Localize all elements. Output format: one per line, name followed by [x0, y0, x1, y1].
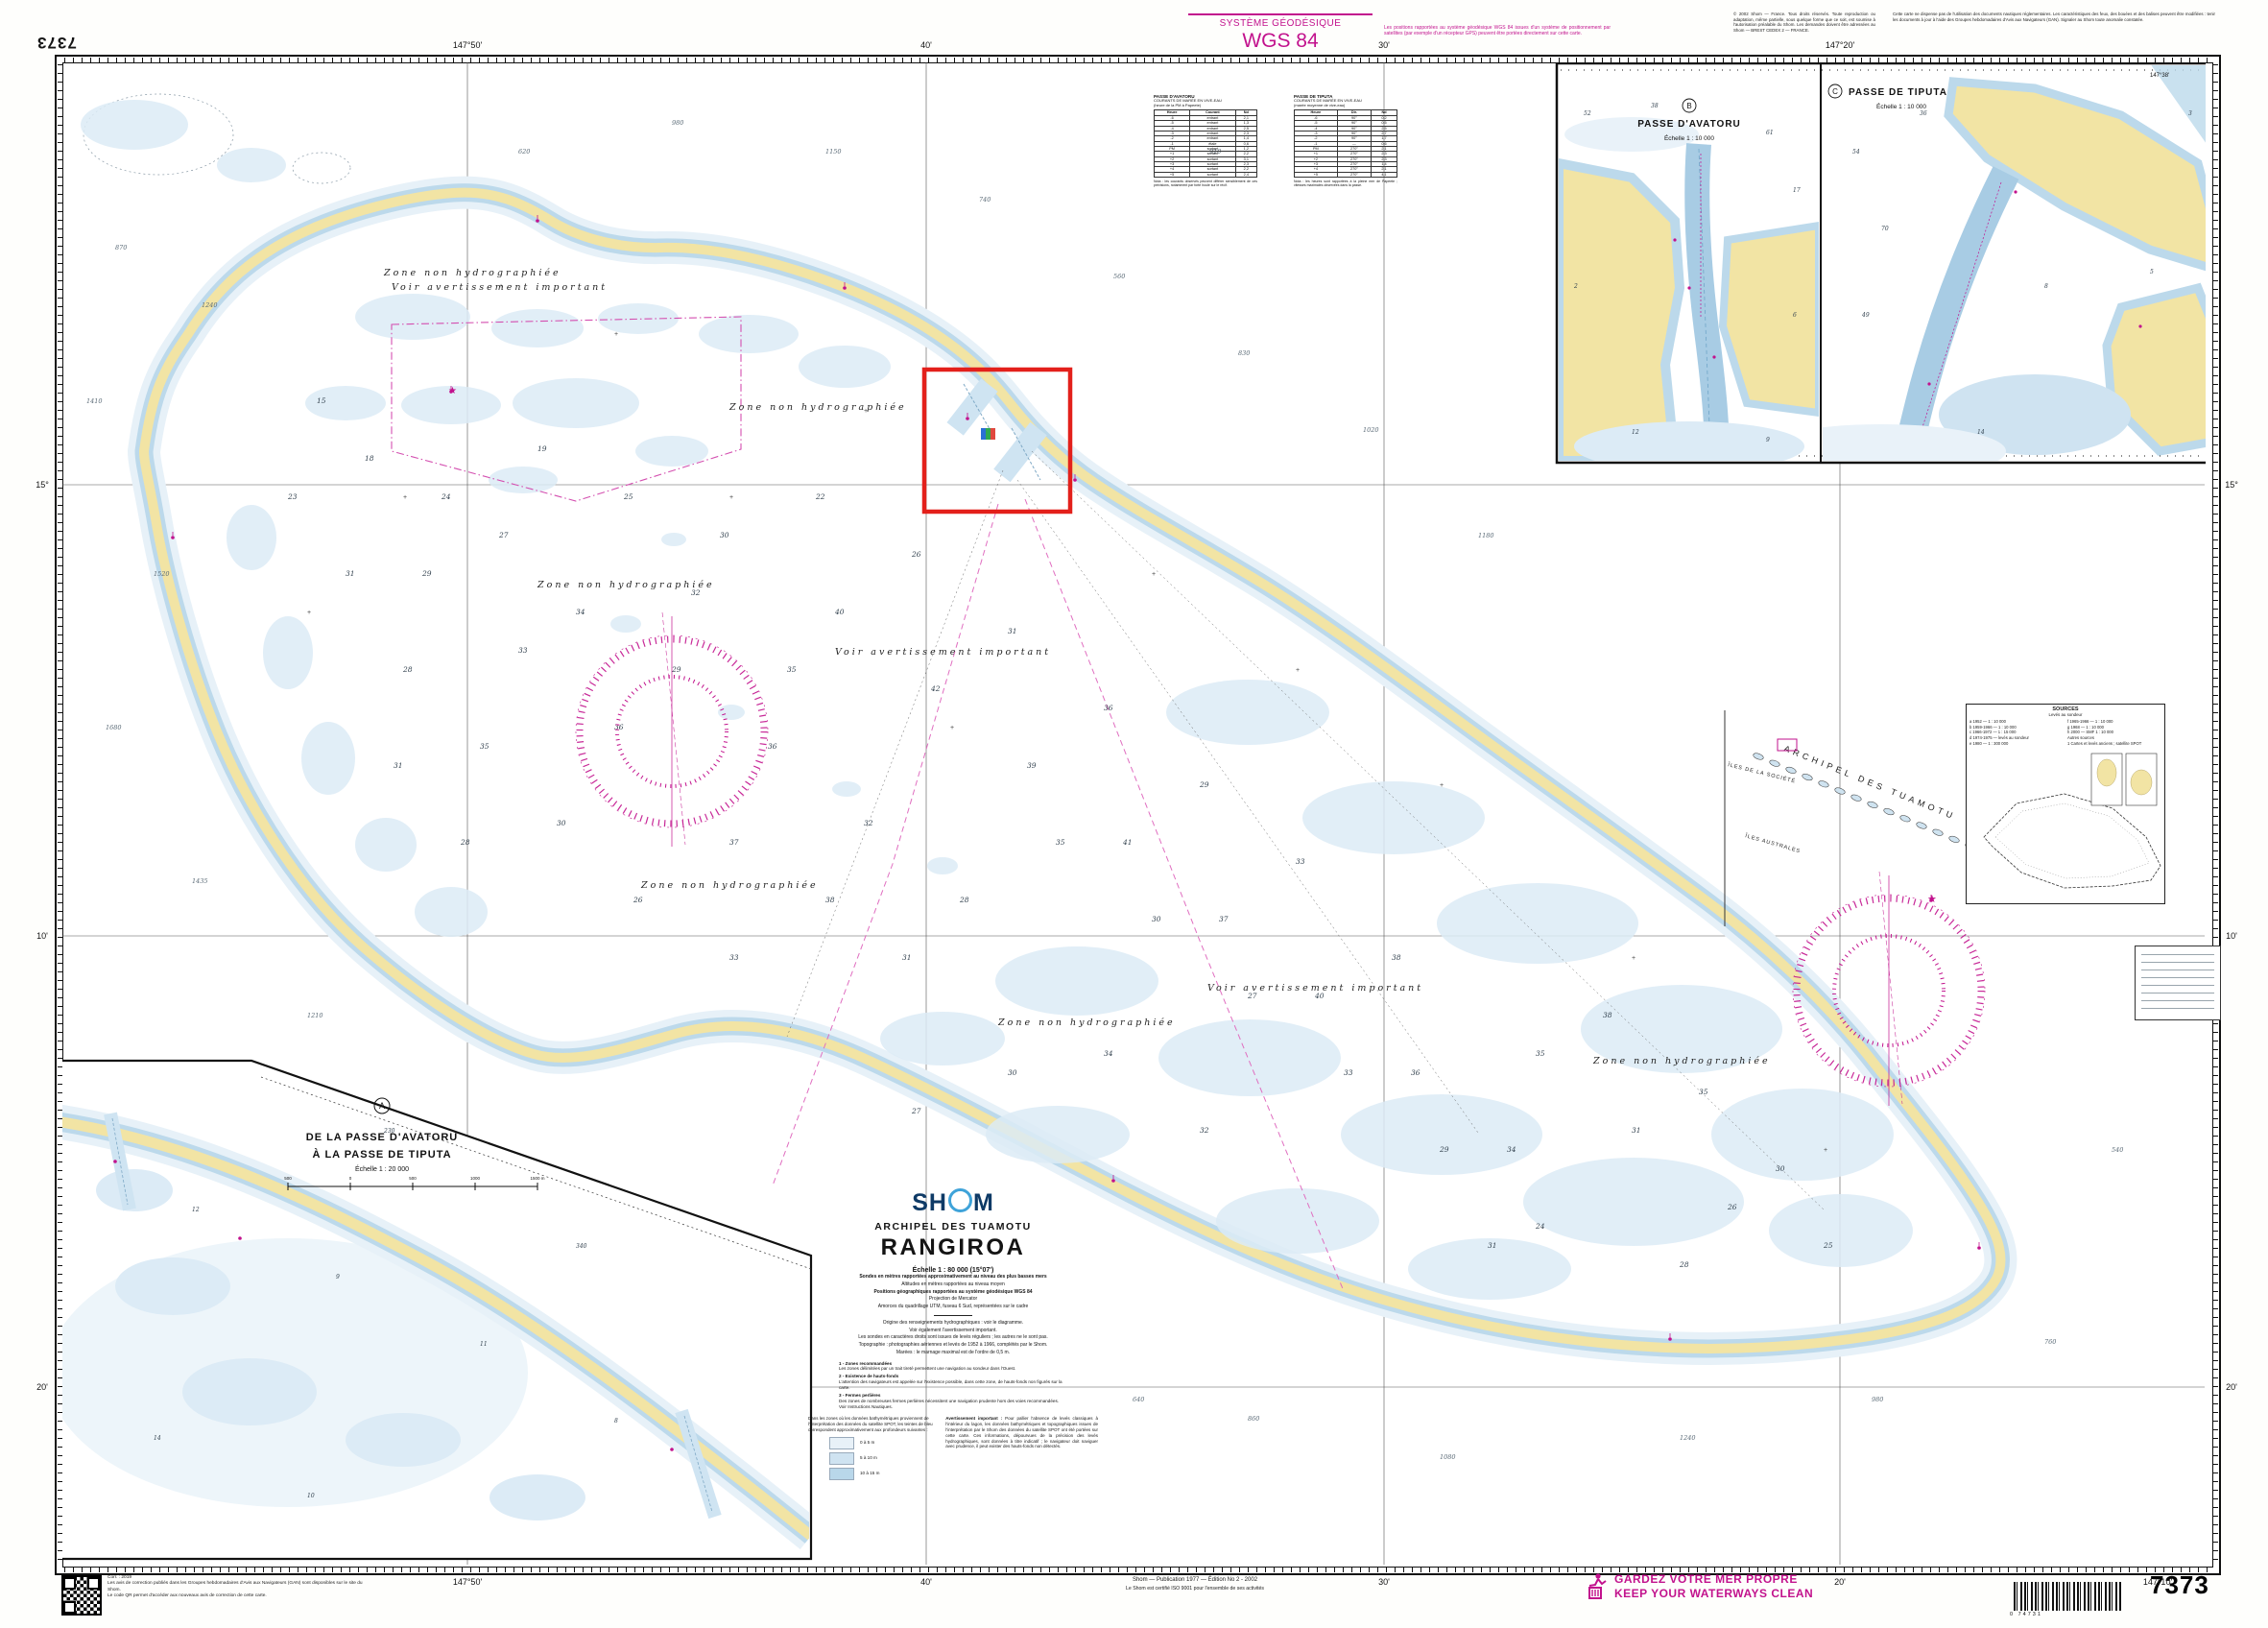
svg-text:8: 8	[2044, 283, 2048, 290]
svg-text:6: 6	[1793, 312, 1797, 319]
keep-sea-clean-note: GARDEZ VOTRE MER PROPRE KEEP YOUR WATERW…	[1586, 1572, 1813, 1601]
svg-text:61: 61	[1766, 130, 1774, 136]
svg-text:1435: 1435	[192, 877, 208, 885]
svg-text:+: +	[614, 331, 618, 338]
svg-text:32: 32	[864, 819, 873, 827]
svg-text:1080: 1080	[1440, 1453, 1456, 1461]
origin-notes: Origine des renseignements hydrographiqu…	[808, 1320, 1098, 1357]
svg-text:2: 2	[1573, 283, 1578, 290]
svg-text:31: 31	[346, 569, 355, 578]
svg-text:33: 33	[518, 646, 528, 655]
svg-text:+: +	[403, 494, 407, 501]
svg-text:31: 31	[1632, 1126, 1641, 1135]
svg-text:40: 40	[834, 608, 845, 616]
svg-text:29: 29	[671, 665, 681, 674]
svg-text:70: 70	[1881, 226, 1889, 232]
svg-text:24: 24	[1535, 1222, 1545, 1231]
svg-text:28: 28	[959, 896, 969, 904]
svg-text:★: ★	[1927, 893, 1937, 905]
svg-text:À LA PASSE DE TIPUTA: À LA PASSE DE TIPUTA	[312, 1148, 451, 1161]
svg-text:31: 31	[902, 953, 912, 962]
archipelago-name: ARCHIPEL DES TUAMOTU	[808, 1221, 1098, 1233]
tide-table: HeureCourantNd-6entrant2,1-5entrant1,3-4…	[1154, 109, 1257, 178]
svg-text:35: 35	[480, 742, 489, 751]
depth-tint-legend: 0 à 5 m 5 à 10 m 10 à 15 m	[808, 1437, 938, 1480]
border-coordinate-label: 30'	[1378, 1577, 1390, 1587]
sources-sketch	[1967, 746, 2162, 890]
svg-text:35: 35	[1536, 1049, 1545, 1058]
svg-text:+: +	[1152, 571, 1156, 578]
svg-text:37: 37	[1219, 915, 1229, 923]
svg-text:37: 37	[729, 838, 739, 847]
svg-text:30: 30	[1008, 1068, 1017, 1077]
svg-text:Zone non hydrographiée: Zone non hydrographiée	[383, 268, 561, 278]
svg-text:31: 31	[394, 761, 403, 770]
svg-text:39: 39	[1027, 761, 1037, 770]
svg-text:500: 500	[284, 1176, 292, 1181]
svg-text:540: 540	[2112, 1146, 2123, 1154]
svg-text:+: +	[729, 494, 733, 501]
svg-text:+: +	[1296, 667, 1300, 674]
svg-text:1680: 1680	[106, 724, 122, 731]
svg-text:Zone non hydrographiée: Zone non hydrographiée	[640, 880, 819, 891]
svg-text:27: 27	[911, 1107, 921, 1115]
svg-text:54: 54	[1852, 149, 1860, 156]
svg-text:870: 870	[115, 244, 127, 251]
svg-text:36: 36	[768, 742, 777, 751]
svg-text:38: 38	[1651, 103, 1659, 109]
clean-sea-fr: GARDEZ VOTRE MER PROPRE	[1614, 1572, 1813, 1587]
svg-text:Zone non hydrographiée: Zone non hydrographiée	[997, 1017, 1176, 1028]
svg-text:9: 9	[336, 1274, 340, 1281]
svg-text:41: 41	[1122, 838, 1133, 847]
svg-text:+: +	[950, 725, 954, 731]
tide-table-tiputa: PASSE DE TIPUTA COURANTS DE MARÉE EN VIV…	[1294, 94, 1397, 187]
svg-text:38: 38	[825, 896, 835, 904]
chart-title: RANGIROA	[808, 1234, 1098, 1261]
clean-sea-en: KEEP YOUR WATERWAYS CLEAN	[1614, 1587, 1813, 1601]
svg-text:1210: 1210	[307, 1012, 323, 1019]
svg-text:9: 9	[1766, 437, 1770, 443]
svg-text:760: 760	[2044, 1338, 2056, 1346]
svg-text:30: 30	[1152, 915, 1161, 923]
svg-text:26: 26	[633, 896, 643, 904]
svg-text:31: 31	[1488, 1241, 1497, 1250]
svg-text:28: 28	[460, 838, 470, 847]
svg-text:30: 30	[1776, 1164, 1785, 1173]
svg-text:25: 25	[1823, 1241, 1833, 1250]
barcode	[2014, 1582, 2121, 1611]
svg-text:35: 35	[1699, 1088, 1708, 1096]
border-coordinate-label: 147°10'	[2143, 1577, 2172, 1587]
svg-text:52: 52	[1584, 110, 1591, 117]
svg-text:PASSE DE TIPUTA: PASSE DE TIPUTA	[1849, 87, 1947, 98]
svg-text:1180: 1180	[1478, 532, 1494, 539]
svg-text:Zone non hydrographiée: Zone non hydrographiée	[728, 402, 907, 413]
svg-text:25: 25	[623, 492, 633, 501]
border-coordinate-label: 20'	[2226, 1382, 2237, 1392]
svg-text:23: 23	[287, 492, 298, 501]
svg-text:36: 36	[1411, 1068, 1420, 1077]
border-coordinate-label: 30'	[1378, 40, 1390, 50]
svg-text:Voir avertissement important: Voir avertissement important	[835, 647, 1051, 658]
border-coordinate-label: 10'	[2226, 931, 2237, 941]
svg-text:Zone non hydrographiée: Zone non hydrographiée	[1592, 1056, 1771, 1066]
svg-text:147°38': 147°38'	[2150, 73, 2169, 79]
depth-swatch-5-10	[829, 1452, 854, 1465]
svg-text:22: 22	[815, 492, 825, 501]
svg-text:Échelle 1 : 20 000: Échelle 1 : 20 000	[355, 1164, 409, 1173]
svg-text:1410: 1410	[86, 397, 103, 405]
svg-text:27: 27	[498, 531, 509, 539]
svg-text:+: +	[499, 283, 503, 290]
svg-text:17: 17	[1793, 187, 1801, 194]
svg-text:30: 30	[720, 531, 729, 539]
svg-text:15: 15	[317, 396, 326, 405]
svg-text:1520: 1520	[154, 570, 170, 578]
border-coordinate-label: 15°	[36, 480, 49, 490]
svg-text:29: 29	[421, 569, 432, 578]
auxiliary-table-box	[2135, 946, 2221, 1020]
svg-text:33: 33	[729, 953, 739, 962]
svg-text:36: 36	[1104, 704, 1113, 712]
svg-text:19: 19	[537, 444, 547, 453]
svg-text:38: 38	[1392, 953, 1401, 962]
numbered-notes: 1 - Zones recommandéesLes zones délimité…	[839, 1361, 1067, 1411]
border-coordinate-label: 40'	[920, 1577, 932, 1587]
svg-text:860: 860	[1248, 1415, 1259, 1423]
svg-text:1240: 1240	[1680, 1434, 1696, 1442]
inset-panel-bc: 5238611726129BPASSE D'AVATORUÉchelle 1 :…	[1557, 63, 2217, 478]
important-warning: Avertissement important : Pour pallier l…	[945, 1416, 1098, 1480]
svg-text:1000: 1000	[470, 1176, 481, 1181]
svg-text:18: 18	[365, 454, 374, 463]
compass-rose	[576, 612, 768, 847]
map-content: 2331283530263338312734293632283530273329…	[48, 62, 2217, 1565]
svg-text:14: 14	[1977, 429, 1985, 436]
svg-text:33: 33	[1296, 857, 1305, 866]
iso-line: Le Shom est certifié ISO 9001 pour l'ens…	[1041, 1586, 1349, 1592]
trash-person-icon	[1586, 1572, 1609, 1601]
svg-text:11: 11	[480, 1341, 488, 1348]
chart-scale: Échelle 1 : 80 000 (15°07')	[808, 1267, 1098, 1274]
tide-table-avatoru: PASSE D'AVATORU COURANTS DE MARÉE EN VIV…	[1154, 94, 1257, 187]
border-coordinate-label: 147°50'	[453, 1577, 482, 1587]
svg-text:340: 340	[576, 1243, 587, 1250]
svg-text:+: +	[307, 610, 311, 616]
svg-text:ÎLES DE LA SOCIÉTÉ: ÎLES DE LA SOCIÉTÉ	[1727, 761, 1797, 785]
svg-text:830: 830	[1238, 349, 1250, 357]
svg-text:560: 560	[1113, 273, 1125, 280]
svg-text:35: 35	[787, 665, 797, 674]
svg-text:640: 640	[1133, 1396, 1144, 1403]
svg-text:26: 26	[911, 550, 921, 559]
depth-swatch-10-15	[829, 1468, 854, 1480]
shom-logo: SHM	[808, 1188, 1098, 1217]
barcode-digits: 0 74731	[2010, 1612, 2042, 1617]
svg-text:34: 34	[1507, 1145, 1516, 1154]
svg-text:PASSE D'AVATORU: PASSE D'AVATORU	[1637, 119, 1741, 130]
auxiliary-table-lines	[2141, 954, 2214, 1012]
border-coordinate-label: 20'	[1834, 1577, 1846, 1587]
border-coordinate-label: 20'	[36, 1382, 48, 1392]
shom-logo-ring-icon	[948, 1188, 972, 1212]
svg-text:3: 3	[2188, 110, 2192, 117]
svg-text:A: A	[379, 1101, 385, 1111]
svg-text:ARCHIPEL DES TUAMOTU: ARCHIPEL DES TUAMOTU	[1782, 744, 1957, 822]
svg-text:1150: 1150	[825, 148, 842, 156]
svg-text:DE LA PASSE D'AVATORU: DE LA PASSE D'AVATORU	[306, 1132, 458, 1143]
sources-diagram: SOURCES Levés au sondeur a 1952 — 1 : 10…	[1966, 704, 2165, 904]
svg-text:1500 m: 1500 m	[530, 1176, 544, 1181]
recommended-route-line	[787, 470, 1003, 1037]
svg-text:33: 33	[1344, 1068, 1353, 1077]
svg-text:500: 500	[409, 1176, 417, 1181]
svg-text:29: 29	[1439, 1145, 1449, 1154]
svg-text:34: 34	[576, 608, 585, 616]
svg-text:B: B	[1686, 102, 1691, 110]
corrections-note: Corr. : 2019Les avis de correction publi…	[107, 1575, 365, 1600]
svg-text:1240: 1240	[202, 301, 218, 309]
svg-text:740: 740	[979, 196, 991, 203]
svg-text:+: +	[1824, 1147, 1827, 1154]
border-coordinate-label: 147°20'	[1826, 40, 1854, 50]
border-coordinate-label: 40'	[920, 40, 932, 50]
svg-text:Échelle 1 : 10 000: Échelle 1 : 10 000	[1876, 102, 1926, 110]
qr-code	[61, 1575, 102, 1616]
svg-text:14: 14	[154, 1435, 161, 1442]
spot-depth-intro: Dans les zones où les données bathymétri…	[808, 1416, 938, 1480]
edition-line: Shom — Publication 1977 — Édition No 2 -…	[1041, 1577, 1349, 1583]
publication-note: Shom — Publication 1977 — Édition No 2 -…	[1041, 1577, 1349, 1592]
svg-text:980: 980	[1872, 1396, 1883, 1403]
svg-text:Échelle 1 : 10 000: Échelle 1 : 10 000	[1664, 133, 1714, 142]
svg-text:C: C	[1832, 87, 1838, 96]
svg-text:Voir avertissement important: Voir avertissement important	[1207, 983, 1423, 994]
svg-text:28: 28	[402, 665, 413, 674]
inset-panel-a: 1291182303401410ADE LA PASSE D'AVATORUÀ …	[48, 1061, 811, 1559]
svg-text:Zone non hydrographiée: Zone non hydrographiée	[537, 580, 715, 590]
svg-text:8: 8	[614, 1418, 618, 1424]
locator-map-tuamotu: ARCHIPEL DES TUAMOTUÎLES DE LA SOCIÉTÉÎL…	[1725, 710, 1976, 926]
border-coordinate-label: 147°50'	[453, 40, 482, 50]
svg-text:12: 12	[192, 1207, 200, 1213]
svg-text:ÎLES AUSTRALES: ÎLES AUSTRALES	[1743, 832, 1801, 855]
svg-text:34: 34	[1104, 1049, 1113, 1058]
datum-notes: Sondes en mètres rapportées approximativ…	[808, 1274, 1098, 1311]
svg-text:42: 42	[930, 684, 941, 693]
svg-text:28: 28	[1679, 1260, 1689, 1269]
svg-text:30: 30	[557, 819, 566, 827]
svg-text:+: +	[1440, 782, 1444, 789]
svg-text:24: 24	[441, 492, 451, 501]
border-coordinate-label: 15°	[2225, 480, 2238, 490]
map-canvas: 2331283530263338312734293632283530273329…	[0, 0, 2268, 1628]
svg-text:1020: 1020	[1363, 426, 1379, 434]
svg-text:+: +	[864, 408, 868, 415]
svg-text:+: +	[1632, 955, 1635, 962]
svg-text:620: 620	[518, 148, 530, 156]
svg-text:10: 10	[307, 1493, 315, 1499]
svg-text:31: 31	[1008, 627, 1017, 635]
svg-text:38: 38	[1603, 1011, 1612, 1019]
svg-text:32: 32	[1200, 1126, 1209, 1135]
svg-text:5: 5	[2150, 269, 2154, 275]
svg-text:35: 35	[1056, 838, 1065, 847]
svg-text:26: 26	[1727, 1203, 1737, 1211]
svg-text:29: 29	[1199, 780, 1209, 789]
svg-text:49: 49	[1861, 312, 1870, 319]
tide-table: HeureDir.Nd-690°0,2-590°0,5-490°2,5-390°…	[1294, 109, 1397, 178]
nautical-chart-sheet: 7373 SYSTÈME GÉODÉSIQUE WGS 84 Les posit…	[0, 0, 2268, 1628]
svg-text:12: 12	[1632, 429, 1639, 436]
depth-swatch-0-5	[829, 1437, 854, 1449]
svg-text:980: 980	[672, 119, 683, 127]
border-coordinate-label: 10'	[36, 931, 48, 941]
svg-text:★: ★	[448, 386, 457, 396]
title-block: SHM ARCHIPEL DES TUAMOTU RANGIROA Échell…	[808, 1188, 1098, 1480]
svg-text:36: 36	[1920, 110, 1927, 117]
